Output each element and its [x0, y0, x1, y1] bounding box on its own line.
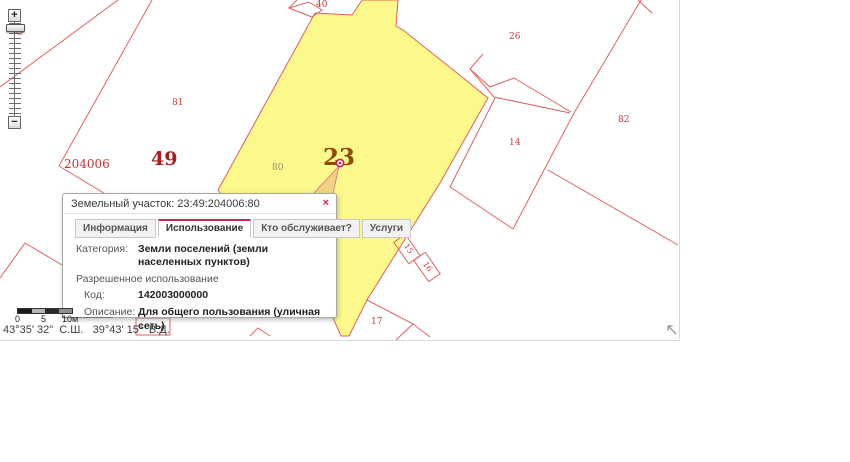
- resize-arrow-icon[interactable]: [665, 323, 679, 337]
- parcel-label-49: 49: [151, 150, 177, 169]
- parcel-label-81: 81: [172, 99, 183, 108]
- scale-tick-10m: 10м: [62, 315, 78, 324]
- page: { "popup": { "title": "Земельный участок…: [0, 0, 850, 462]
- popup-header: Земельный участок: 23:49:204006:80 ×: [63, 194, 336, 214]
- parcel-label-80: 80: [272, 164, 283, 173]
- scale-tick-5: 5: [41, 315, 46, 324]
- tab-uslugi[interactable]: Услуги: [362, 219, 411, 238]
- code-label: Код:: [84, 289, 138, 302]
- tab-kto-obsluzhivaet[interactable]: Кто обслуживает?: [253, 219, 360, 238]
- zoom-out-button[interactable]: −: [8, 116, 21, 129]
- parcel-label-82: 82: [618, 116, 629, 125]
- category-value: Земли поселений (земли населенных пункто…: [138, 243, 328, 269]
- coordinates-display: 43°35' 32" С.Ш. 39°43' 15" В.Д.: [3, 324, 170, 336]
- code-value: 142003000000: [138, 289, 208, 302]
- popup-tabs: Информация Использование Кто обслуживает…: [75, 219, 336, 238]
- tab-informatsiya[interactable]: Информация: [75, 219, 156, 238]
- zoom-slider-axis: [14, 22, 15, 117]
- popup-title: Земельный участок: 23:49:204006:80: [71, 198, 260, 210]
- tab-ispolzovanie[interactable]: Использование: [158, 219, 251, 238]
- close-icon[interactable]: ×: [323, 197, 329, 209]
- zoom-slider-handle[interactable]: [6, 24, 25, 32]
- zoom-in-button[interactable]: +: [8, 9, 21, 22]
- quarter-label-204006: 204006: [64, 158, 110, 170]
- parcel-info-popup: Земельный участок: 23:49:204006:80 × Инф…: [62, 193, 337, 318]
- permitted-use-heading: Разрешенное использование: [76, 273, 328, 285]
- zoom-slider-track[interactable]: [9, 23, 21, 116]
- popup-body: Категория: Земли поселений (земли населе…: [63, 238, 336, 333]
- parcel-marker-icon: [332, 155, 348, 171]
- parcel-label-17: 17: [371, 318, 382, 327]
- map-canvas[interactable]: 40 26 81 82 14 204006 49 80 23 17 15 16 …: [0, 0, 680, 341]
- parcel-label-40: 40: [316, 1, 327, 10]
- parcel-label-14: 14: [509, 139, 520, 148]
- category-label: Категория:: [76, 243, 138, 269]
- scale-tick-0: 0: [15, 315, 20, 324]
- parcel-label-26: 26: [509, 33, 520, 42]
